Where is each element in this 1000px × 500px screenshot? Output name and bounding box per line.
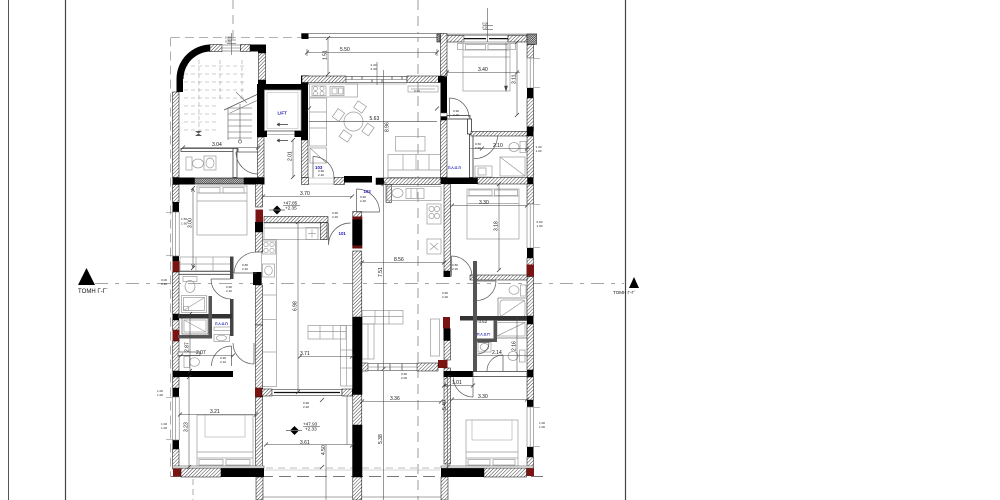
svg-text:+2.33: +2.33 bbox=[305, 427, 317, 432]
svg-text:2.87: 2.87 bbox=[185, 342, 191, 352]
svg-text:2.01: 2.01 bbox=[288, 151, 294, 161]
svg-text:Π.Λ.Ω.Π: Π.Λ.Ω.Π bbox=[215, 322, 228, 326]
svg-text:2.20: 2.20 bbox=[452, 267, 458, 271]
svg-text:5.63: 5.63 bbox=[370, 116, 380, 122]
svg-text:0.90: 0.90 bbox=[475, 146, 481, 150]
svg-text:3.30: 3.30 bbox=[478, 394, 488, 400]
svg-text:0.90: 0.90 bbox=[225, 40, 231, 44]
svg-text:3.70: 3.70 bbox=[300, 191, 310, 197]
svg-text:8.96: 8.96 bbox=[385, 122, 391, 132]
svg-text:2.00: 2.00 bbox=[401, 376, 407, 380]
svg-text:3.00: 3.00 bbox=[188, 218, 194, 228]
svg-text:2.20: 2.20 bbox=[453, 113, 459, 117]
svg-text:3.36: 3.36 bbox=[390, 396, 400, 402]
svg-text:1.00: 1.00 bbox=[161, 426, 167, 430]
svg-text:2.20: 2.20 bbox=[332, 215, 338, 219]
svg-text:3.30: 3.30 bbox=[479, 200, 489, 206]
svg-text:-3.62: -3.62 bbox=[477, 319, 488, 324]
svg-text:0.30: 0.30 bbox=[482, 26, 488, 30]
svg-text:7.51: 7.51 bbox=[378, 267, 384, 277]
svg-text:Π.Λ.Ω.Π: Π.Λ.Ω.Π bbox=[477, 333, 490, 337]
svg-text:3.23: 3.23 bbox=[184, 422, 190, 432]
svg-text:2.10: 2.10 bbox=[493, 143, 503, 149]
svg-text:5.40: 5.40 bbox=[442, 400, 448, 410]
svg-text:+2.35: +2.35 bbox=[285, 206, 297, 211]
svg-text:8.56: 8.56 bbox=[394, 257, 404, 263]
svg-text:1.00: 1.00 bbox=[536, 149, 542, 153]
svg-text:0.90: 0.90 bbox=[414, 89, 420, 93]
svg-text:3.04: 3.04 bbox=[212, 142, 222, 148]
svg-text:1.00: 1.00 bbox=[539, 425, 545, 429]
svg-text:ΤOΜΗ Γ-Γ´: ΤOΜΗ Γ-Γ´ bbox=[78, 289, 108, 295]
svg-text:3.71: 3.71 bbox=[300, 351, 310, 357]
svg-text:2.40: 2.40 bbox=[371, 67, 377, 71]
svg-text:2.20: 2.20 bbox=[442, 295, 448, 299]
svg-text:3.11: 3.11 bbox=[512, 74, 518, 84]
svg-text:2.10: 2.10 bbox=[220, 360, 226, 364]
svg-text:2.20: 2.20 bbox=[242, 267, 248, 271]
svg-text:LIFT: LIFT bbox=[278, 110, 288, 115]
svg-text:101: 101 bbox=[339, 231, 347, 236]
svg-text:0.90: 0.90 bbox=[161, 282, 167, 286]
svg-text:2.10: 2.10 bbox=[226, 289, 232, 293]
svg-text:5.50: 5.50 bbox=[340, 47, 350, 53]
svg-text:2.20: 2.20 bbox=[303, 405, 309, 409]
svg-text:102: 102 bbox=[364, 189, 372, 194]
svg-text:4.50: 4.50 bbox=[321, 445, 327, 455]
svg-text:1.51: 1.51 bbox=[323, 50, 329, 60]
svg-text:6.98: 6.98 bbox=[293, 301, 299, 311]
svg-text:3.21: 3.21 bbox=[210, 409, 220, 415]
svg-text:5.38: 5.38 bbox=[378, 434, 384, 444]
svg-text:103: 103 bbox=[315, 165, 323, 170]
svg-text:3.61: 3.61 bbox=[300, 440, 310, 446]
svg-text:1.90: 1.90 bbox=[181, 222, 187, 226]
svg-text:1.50: 1.50 bbox=[181, 217, 187, 221]
svg-text:2.16: 2.16 bbox=[512, 341, 518, 351]
svg-text:1.01: 1.01 bbox=[452, 380, 462, 386]
svg-text:1.00: 1.00 bbox=[157, 393, 163, 397]
svg-text:2.20: 2.20 bbox=[318, 173, 324, 177]
svg-text:ΤOΜΗ Γ-Γ´: ΤOΜΗ Γ-Γ´ bbox=[613, 290, 636, 295]
svg-text:3.18: 3.18 bbox=[494, 221, 500, 231]
svg-text:1.90: 1.90 bbox=[537, 224, 543, 228]
svg-text:2.07: 2.07 bbox=[196, 350, 206, 356]
svg-text:Π.Λ.ΙΣ.Π: Π.Λ.ΙΣ.Π bbox=[448, 166, 462, 170]
svg-text:2.20: 2.20 bbox=[360, 199, 366, 203]
svg-text:2.14: 2.14 bbox=[492, 350, 502, 356]
svg-text:3.40: 3.40 bbox=[478, 67, 488, 73]
